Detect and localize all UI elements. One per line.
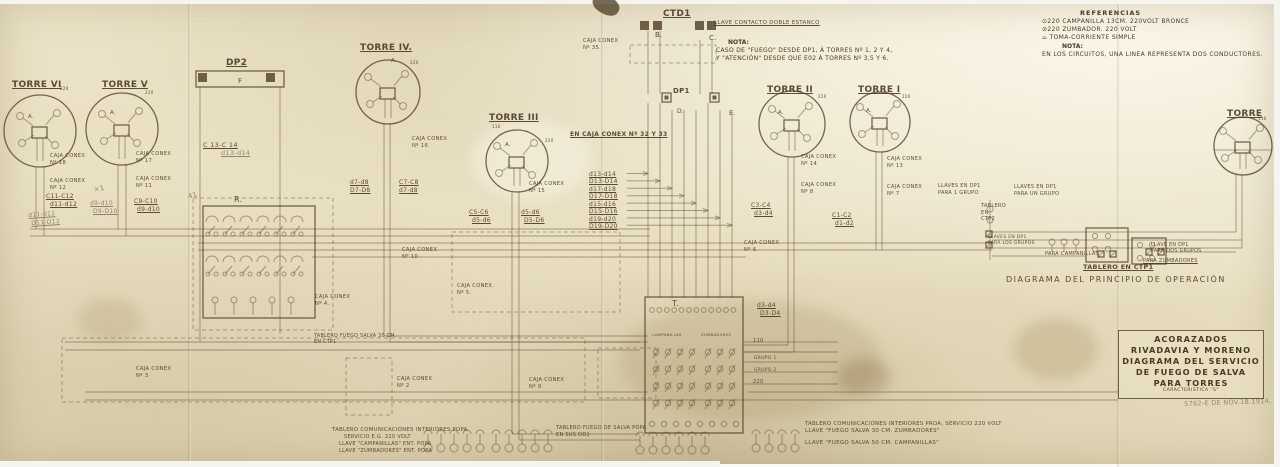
torre-label: TORRE V bbox=[102, 80, 148, 92]
diagram-label: CAMPANILLAS bbox=[652, 333, 682, 338]
diagram-label: A. bbox=[28, 114, 34, 121]
references-block: REFERENCIAS ⊙220 CAMPANILLA 13CM. 220VOL… bbox=[1042, 9, 1280, 58]
diagram-label: CAJA CONEX Nº 13 bbox=[887, 156, 922, 170]
diagram-label: D15-D16 bbox=[589, 208, 618, 216]
diagram-label: D7-D8 bbox=[350, 187, 371, 195]
diagram-label: 220 bbox=[902, 94, 911, 99]
diagram-label: D. bbox=[677, 108, 684, 116]
diagram-label: ZUMBADORES bbox=[701, 333, 731, 338]
diagram-label: T. bbox=[672, 299, 679, 309]
diagram-label: C9-C10 bbox=[134, 198, 158, 206]
diagram-label: d1-d2 bbox=[835, 220, 854, 228]
diagram-label: CAJA CONEX Nº 16 bbox=[412, 136, 447, 150]
diagram-label: CAJA CONEX Nº 12 bbox=[50, 178, 85, 192]
diagram-label: CAJA CONEX Nº 14 bbox=[801, 154, 836, 168]
diagram-label: C5-C6 bbox=[469, 209, 489, 217]
scanned-wiring-diagram: DP2FR.CTD1LLAVE CONTACTO DOBLE ESTANCOB.… bbox=[0, 0, 1280, 467]
diagram-label: SERVICIO E.G. 220 VOLT bbox=[344, 434, 411, 441]
title-subline: CARACTERISTICA "S" bbox=[1119, 388, 1263, 393]
diagram-label: 220 bbox=[753, 379, 763, 386]
diagram-label: LLAVE CONTACTO DOBLE ESTANCO bbox=[714, 20, 820, 27]
diagram-label: D13-D14 bbox=[589, 178, 618, 186]
diagram-label: CAJA CONEX Nº 8 bbox=[801, 182, 836, 196]
note-label: NOTA: bbox=[728, 39, 1016, 46]
diagram-label: D5-D6 bbox=[524, 217, 545, 225]
diagram-label: CAJA CONEX Nº 11 bbox=[136, 176, 171, 190]
diagram-label: D9-D10 bbox=[93, 208, 118, 216]
title-line: RIVADAVIA Y MORENO bbox=[1119, 345, 1263, 356]
torre-label: TORRE VI bbox=[12, 80, 62, 92]
torre-label: TORRE I bbox=[858, 85, 900, 97]
diagram-label: GRUPO 2 bbox=[754, 368, 777, 374]
torre-label: TORRE III bbox=[489, 113, 539, 125]
diagram-label: CAJA CONEX Nº 15 bbox=[529, 181, 564, 195]
diagram-label: CAJA CONEX Nº 10 bbox=[402, 247, 437, 261]
diagram-label: TABLERO EN CTP2 bbox=[981, 203, 1006, 223]
diagram-label: DP2 bbox=[226, 58, 247, 70]
title-line: ACORAZADOS bbox=[1119, 334, 1263, 345]
diagram-label: CAJA CONEX Nº 2 bbox=[397, 376, 432, 390]
wiring-diagram-canvas bbox=[0, 0, 1280, 467]
reference-line: ⊘220 ZUMBADOR. 220 VOLT bbox=[1042, 26, 1280, 33]
references-nota-label: NOTA: bbox=[1062, 43, 1280, 50]
diagram-label: LLAVES EN DP1 PARA LOS GRUPOS bbox=[988, 235, 1035, 247]
diagram-label: A. bbox=[778, 110, 784, 117]
diagram-label: DP1 bbox=[673, 87, 690, 96]
diagram-label: TABLERO FUEGO DE SALVA POPA EN SUS DD1 bbox=[556, 425, 646, 438]
diagram-label: CAJA CONEX Nº 4. bbox=[315, 294, 350, 308]
diagram-label: LLAVES EN DP1 PARA UN GRUPO bbox=[1014, 184, 1059, 197]
diagram-label: C11-C12 bbox=[46, 193, 74, 201]
diagram-label: d9-d10 bbox=[90, 200, 113, 208]
reference-line: ⊙220 CAMPANILLA 13CM. 220VOLT BRONCE bbox=[1042, 18, 1280, 25]
diagram-label: CAJA CONEX Nº 7 bbox=[887, 184, 922, 198]
diagram-label: 220 bbox=[545, 138, 554, 143]
diagram-label: C7-C8 bbox=[399, 179, 419, 187]
diagram-label: CAJA CONEX Nº 6 bbox=[744, 240, 779, 254]
diagram-label: D17-D18 bbox=[589, 193, 618, 201]
note-line: Y "ATENCIÓN" DESDE QUE E02 Á TORRES Nº 3… bbox=[716, 55, 1016, 62]
diagram-label: D3-D4 bbox=[760, 310, 781, 318]
torre-label: TORRE IV. bbox=[360, 43, 412, 55]
diagram-label: 110 bbox=[753, 338, 763, 345]
diagram-label: D19-D20 bbox=[589, 223, 618, 231]
diagram-label: CAJA CONEX Nº 35. bbox=[583, 38, 618, 52]
diagram-label: C3-C4 bbox=[751, 202, 771, 210]
diagram-label: B. bbox=[655, 31, 663, 40]
diagram-label: CAJA CONEX Nº 17 bbox=[136, 151, 171, 165]
diagram-label: TABLERO COMUNICACIONES INTERIORES PROA, … bbox=[805, 421, 1002, 428]
diagram-label: LLAVE "FUEGO SALVA 50 CM. CAMPANILLAS" bbox=[805, 440, 939, 447]
center-note: NOTA: CASO DE "FUEGO" DESDE DP1, Á TORRE… bbox=[716, 39, 1016, 62]
diagram-label: 220 bbox=[410, 60, 419, 65]
title-line: DIAGRAMA DEL SERVICIO bbox=[1119, 356, 1263, 367]
torre-label: TORRE II bbox=[767, 85, 813, 97]
diagram-label: LLAVE "ZUMBADORES" ENT. POPA bbox=[339, 448, 432, 455]
diagram-label: CAJA CONEX Nº 9 bbox=[529, 377, 564, 391]
references-nota-text: EN LOS CIRCUITOS, UNA LINEA REPRESENTA D… bbox=[1042, 51, 1280, 58]
diagram-label: PARA CAMPANILLAS bbox=[1045, 251, 1099, 258]
reference-line: ⌓ TOMA-CORRIENTE SIMPLE bbox=[1042, 34, 1280, 42]
diagram-label: d3-d4 bbox=[754, 210, 773, 218]
diagram-label: A. bbox=[866, 108, 872, 115]
diagram-label: DIAGRAMA DEL PRINCIPIO DE OPERACIÓN bbox=[1006, 275, 1226, 285]
diagram-label: d5-d6 bbox=[521, 209, 540, 217]
diagram-label: F bbox=[238, 77, 242, 86]
diagram-label: PARA ZUMBADORES bbox=[1143, 258, 1198, 265]
diagram-label: LLAVE "FUEGO SALVA 30 CM. ZUMBADORES" bbox=[805, 428, 940, 435]
diagram-label: A. bbox=[391, 58, 397, 65]
diagram-label: d7-d8 bbox=[350, 179, 369, 187]
diagram-label: C1-C2 bbox=[832, 212, 852, 220]
title-line: DE FUEGO DE SALVA bbox=[1119, 367, 1263, 378]
diagram-label: A. bbox=[505, 142, 511, 149]
diagram-label: d11-d12 bbox=[50, 201, 77, 209]
diagram-label: LLAVE EN DP1 PARA DOS GRUPOS bbox=[1151, 243, 1202, 255]
diagram-label: LLAVE "CAMPANILLAS" ENT. POPA bbox=[339, 441, 431, 448]
diagram-label: d3-d4 bbox=[757, 302, 776, 310]
diagram-label: CTD1 bbox=[663, 9, 691, 21]
torre-label: TORRE bbox=[1227, 109, 1262, 121]
title-block: ACORAZADOS RIVADAVIA Y MORENO DIAGRAMA D… bbox=[1118, 330, 1264, 399]
diagram-label: d9-d10 bbox=[137, 206, 160, 214]
diagram-label: LLAVES EN DP1 PARA 1 GRUPO bbox=[938, 183, 981, 196]
diagram-label: GRUPO 1 bbox=[754, 356, 777, 362]
diagram-label: TABLERO FUEGO SALVA 30 CM. EN CTP1 bbox=[314, 334, 397, 346]
diagram-label: CAJA CONEX Nº 18 bbox=[50, 153, 85, 167]
diagram-label: EN CAJA CONEX Nº 32 Y 33 bbox=[570, 131, 667, 139]
diagram-label: A. bbox=[110, 110, 116, 117]
diagram-label: CAJA CONEX. Nº 5. bbox=[457, 283, 494, 297]
diagram-label: d5-d6 bbox=[472, 217, 491, 225]
diagram-label: 110 bbox=[492, 124, 501, 129]
diagram-label: 220 bbox=[818, 94, 827, 99]
diagram-label: d13-d14 bbox=[221, 149, 250, 157]
note-line: CASO DE "FUEGO" DESDE DP1, Á TORRES Nº 1… bbox=[716, 47, 1016, 54]
diagram-label: E. bbox=[729, 110, 735, 118]
references-title: REFERENCIAS bbox=[1080, 9, 1280, 17]
diagram-label: TABLERO COMUNICACIONES INTERIORES POPA bbox=[332, 427, 468, 434]
diagram-label: CAJA CONEX Nº 3 bbox=[136, 366, 171, 380]
diagram-label: d7-d8 bbox=[399, 187, 418, 195]
diagram-label: R. bbox=[234, 195, 242, 205]
